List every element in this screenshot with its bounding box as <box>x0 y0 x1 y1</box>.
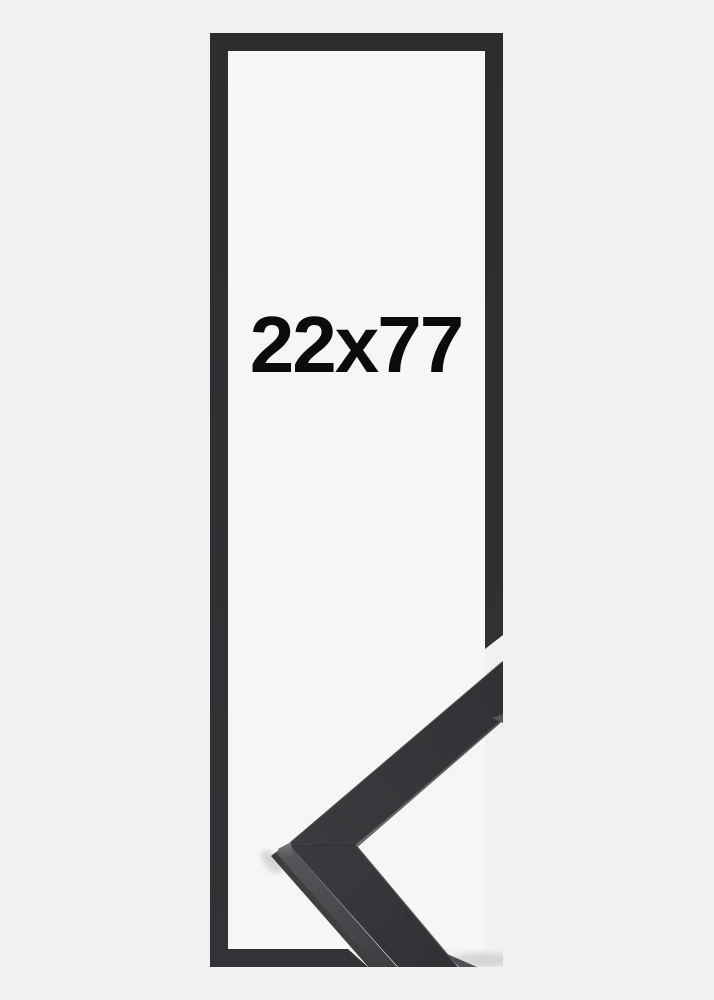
size-label: 22x77 <box>250 300 462 389</box>
frame-size-illustration: 22x77 <box>0 0 714 1000</box>
product-image: 22x77 <box>0 0 714 1000</box>
